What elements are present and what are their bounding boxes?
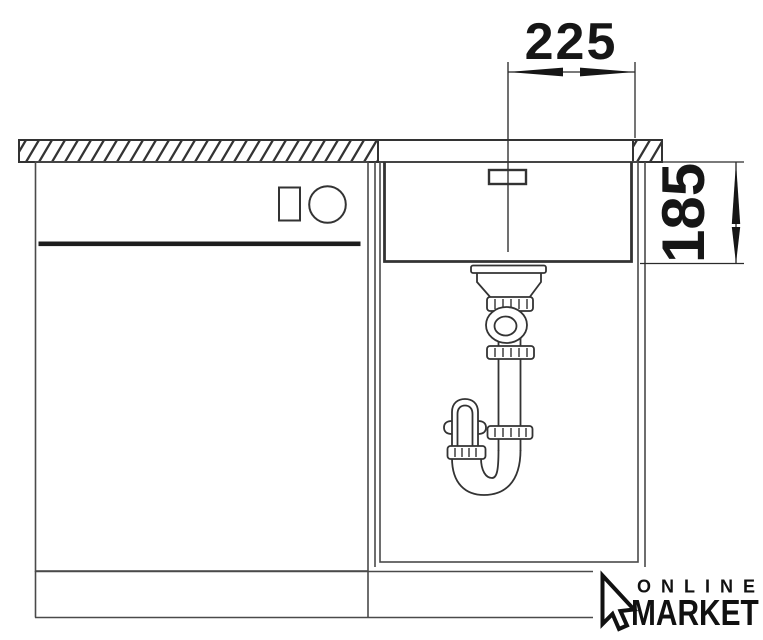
siphon-loop-inner [458, 406, 473, 448]
countertop [19, 140, 662, 162]
logo-line2: MARKET [631, 593, 759, 633]
drain-flange [471, 266, 546, 274]
countertop-left-section [19, 140, 378, 162]
technical-drawing-canvas: 225 185 ONLINE MARKET [0, 0, 763, 640]
left-cabinet-outline [36, 162, 369, 571]
plinth [35, 571, 593, 618]
dimension-depth-label: 185 [650, 163, 717, 263]
control-knob [309, 186, 346, 223]
dimension-depth: 185 [640, 162, 744, 264]
siphon-nut-left [448, 446, 486, 459]
sink-cabinet-inner [380, 162, 638, 562]
siphon-nut-second [487, 346, 534, 359]
siphon-knob-right [478, 421, 486, 434]
dimension-width: 225 [508, 13, 635, 138]
drawer-gap-line [39, 242, 361, 247]
siphon-down-pipe [499, 359, 521, 427]
dimension-width-label: 225 [525, 13, 618, 71]
control-rectangle [279, 188, 300, 221]
sink-rim [378, 140, 633, 162]
brand-logo: ONLINE MARKET [603, 576, 763, 634]
mouse-cursor-icon [603, 576, 635, 630]
dimension-depth-arrow-up [732, 163, 740, 225]
dimension-depth-arrow-down [732, 227, 740, 264]
countertop-right-section [633, 140, 662, 162]
drain-funnel [477, 273, 541, 298]
sink-cabinet [375, 162, 645, 567]
left-cabinet [36, 162, 369, 618]
siphon-pipe-lower [499, 439, 521, 451]
siphon-nut-third [488, 426, 533, 439]
siphon-swivel-ring [486, 307, 527, 343]
siphon-knob-left [444, 421, 452, 434]
siphon [444, 266, 546, 496]
